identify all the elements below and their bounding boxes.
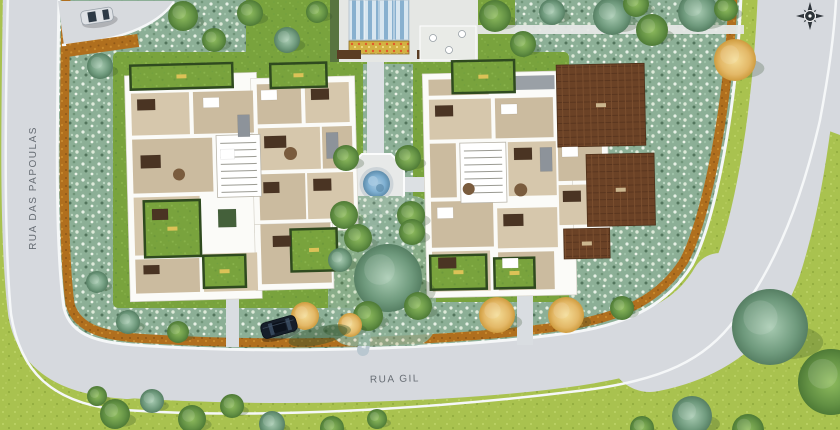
furniture [435, 105, 453, 116]
garden-label-chip [453, 270, 463, 274]
street-label-rua-das-papoulas: RUA DAS PAPOULAS [28, 126, 39, 250]
furniture [313, 178, 331, 190]
furniture [264, 136, 286, 149]
garden-label-chip [309, 248, 319, 252]
tree-highlight [120, 314, 131, 325]
garden-label-chip [220, 269, 230, 273]
tree-highlight [263, 415, 275, 427]
tree-highlight [408, 296, 421, 309]
furniture [438, 257, 456, 268]
tree-highlight [403, 223, 415, 235]
apartment-room [257, 83, 302, 124]
apartment-room [131, 92, 190, 136]
planter [337, 50, 361, 59]
furniture [311, 88, 329, 99]
apartment-room [495, 97, 554, 138]
tree-highlight [182, 409, 195, 422]
tree-highlight [224, 398, 235, 409]
site-plan: RUA DAS PAPOULAS RUA GIL [0, 0, 840, 430]
tree-highlight [399, 149, 411, 161]
tree-highlight [89, 274, 99, 284]
furniture [261, 90, 277, 100]
tree-highlight [484, 5, 498, 19]
deck-label-chip [582, 241, 592, 245]
tree-highlight [334, 205, 347, 218]
garden-label-chip [176, 74, 186, 78]
garden-label-chip [478, 75, 488, 79]
furniture [501, 104, 517, 114]
street-label-rua-gil: RUA GIL [370, 373, 420, 385]
apartment-room [259, 173, 306, 220]
tree-highlight [599, 3, 616, 20]
tree-highlight [348, 228, 361, 241]
tree-highlight [91, 57, 103, 69]
tree-highlight [641, 19, 655, 33]
furniture [218, 209, 236, 227]
tree-highlight [278, 31, 290, 43]
tree-highlight [295, 306, 308, 319]
deck-label-chip [596, 103, 606, 107]
tree-highlight [206, 32, 217, 43]
furniture [237, 115, 250, 137]
tree-highlight [808, 359, 838, 389]
apartment-room [497, 207, 558, 248]
tree-highlight [514, 35, 526, 47]
furniture [152, 209, 168, 220]
furniture [502, 258, 518, 268]
furniture [437, 207, 453, 218]
apartment-room [429, 98, 492, 139]
terrace [420, 26, 476, 60]
entry-plaza [330, 0, 478, 62]
tree-highlight [543, 3, 555, 15]
tree-highlight [370, 412, 379, 421]
tree-highlight [324, 420, 335, 430]
tree-highlight [170, 324, 180, 334]
tree-highlight [718, 1, 729, 12]
tree-highlight [364, 254, 395, 285]
tree-highlight [337, 149, 349, 161]
furniture [203, 97, 219, 107]
tree-highlight [553, 302, 569, 318]
tree-highlight [358, 306, 372, 320]
tree-highlight [241, 4, 253, 16]
furniture [137, 99, 155, 110]
furniture [141, 155, 161, 169]
tree-highlight [173, 6, 187, 20]
apartment-room [135, 258, 200, 294]
furniture [220, 149, 234, 159]
furniture [503, 214, 523, 226]
tree-highlight [401, 205, 414, 218]
apartment-room [430, 143, 457, 198]
garden-label-chip [167, 227, 177, 231]
site-plan-canvas: RUA DAS PAPOULAS RUA GIL [0, 0, 840, 430]
furniture [562, 147, 578, 157]
furniture [273, 236, 291, 247]
tree-highlight [144, 393, 155, 404]
furniture [540, 147, 552, 171]
tree-highlight [614, 300, 625, 311]
garden-label-chip [509, 271, 519, 275]
furniture [143, 265, 159, 274]
tree-highlight [90, 389, 99, 398]
tree-highlight [743, 300, 777, 334]
tree-highlight [332, 252, 343, 263]
deck-label-chip [616, 188, 626, 192]
apartment-room [514, 75, 554, 90]
tree-highlight [309, 4, 319, 14]
garden-label-chip [293, 73, 303, 77]
tree-highlight [634, 420, 645, 430]
tree-highlight [720, 45, 739, 64]
tree-highlight [678, 402, 696, 420]
furniture [563, 191, 581, 202]
tree-highlight [484, 302, 500, 318]
building-left [124, 60, 360, 302]
furniture [263, 182, 279, 193]
furniture [514, 148, 532, 160]
tree-highlight [105, 404, 119, 418]
